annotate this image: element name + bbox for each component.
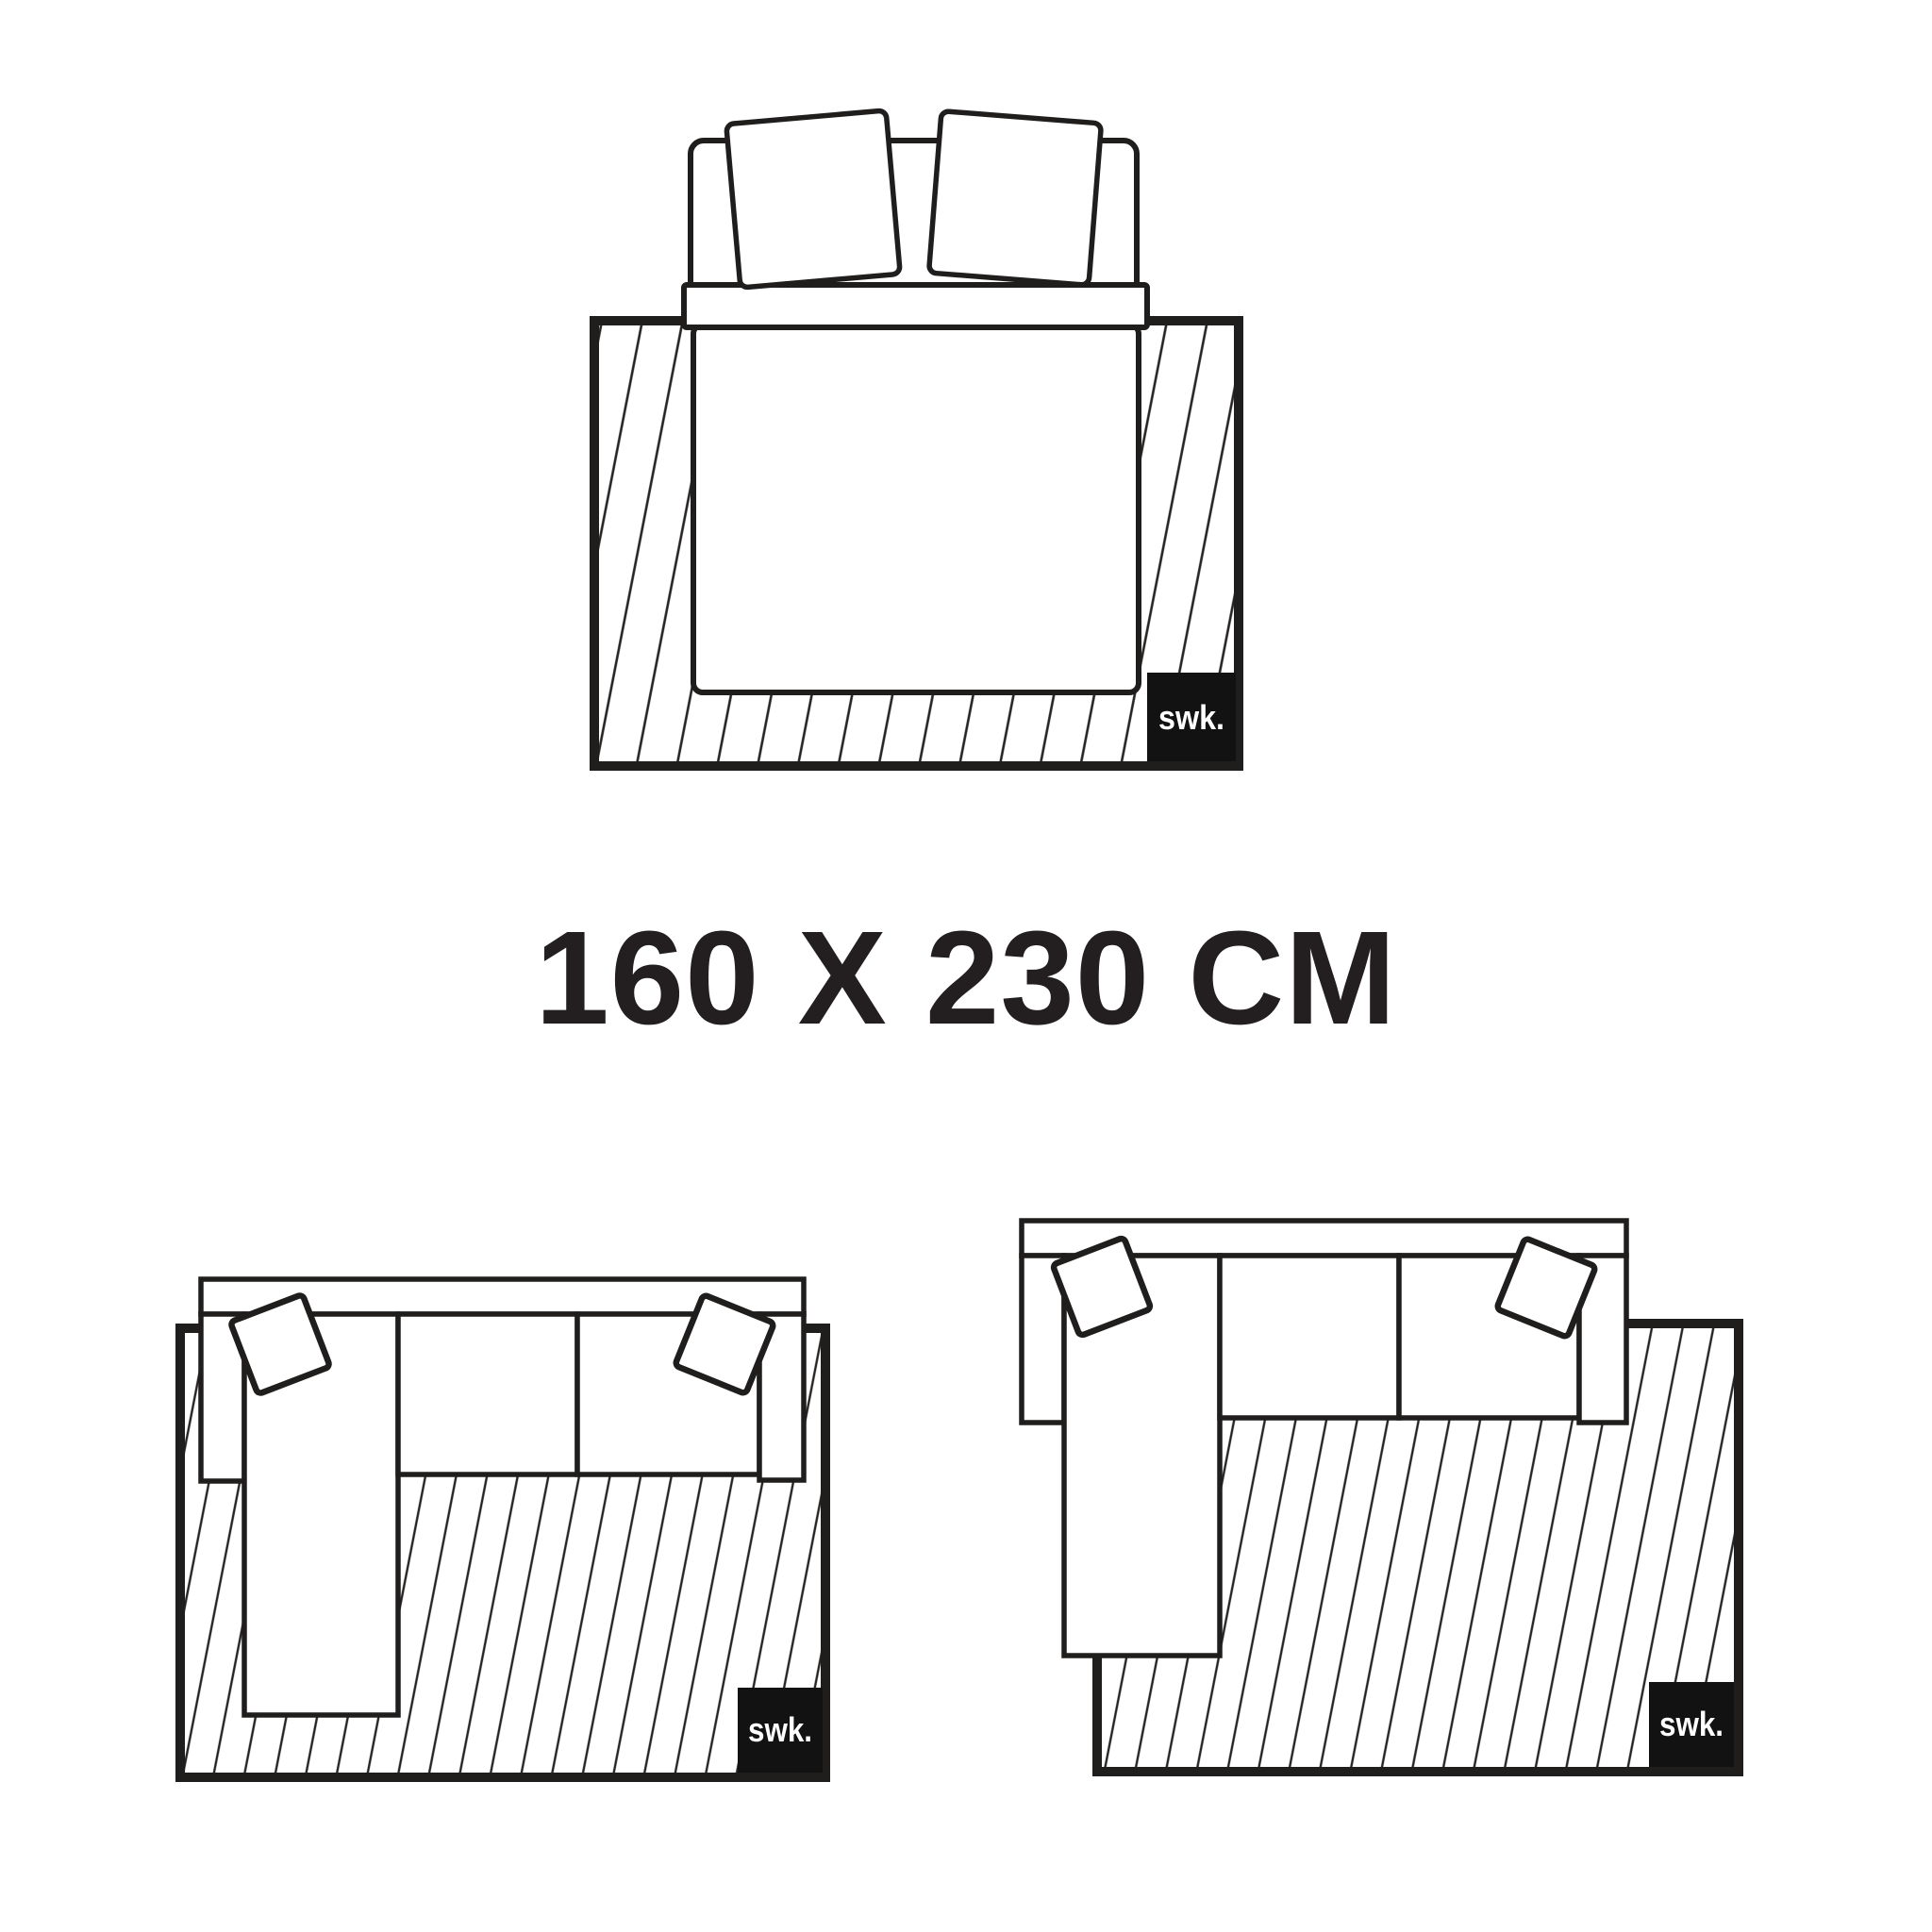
sofa-left-diagram: swk. bbox=[160, 1245, 849, 1811]
bed-pillow-right-icon bbox=[929, 111, 1102, 286]
brand-logo-text: swk. bbox=[1158, 698, 1224, 737]
sofa-seat-middle bbox=[398, 1314, 577, 1474]
brand-logo-text: swk. bbox=[1659, 1705, 1724, 1743]
sofa-seat-middle bbox=[1220, 1256, 1399, 1418]
brand-badge: swk. bbox=[738, 1688, 823, 1773]
sofa-right-diagram: swk. bbox=[1000, 1189, 1755, 1792]
bed-diagram: swk. bbox=[566, 75, 1264, 792]
bed-duvet bbox=[693, 325, 1139, 692]
size-label: 160 X 230 CM bbox=[0, 908, 1932, 1046]
brand-badge: swk. bbox=[1147, 673, 1236, 761]
bed-pillow-left-icon bbox=[726, 110, 901, 288]
rug-size-guide: swk. 160 X 230 CM swk. bbox=[0, 0, 1932, 1932]
brand-badge: swk. bbox=[1649, 1682, 1734, 1767]
brand-logo-text: swk. bbox=[748, 1710, 812, 1749]
bed-top-band bbox=[684, 285, 1147, 327]
